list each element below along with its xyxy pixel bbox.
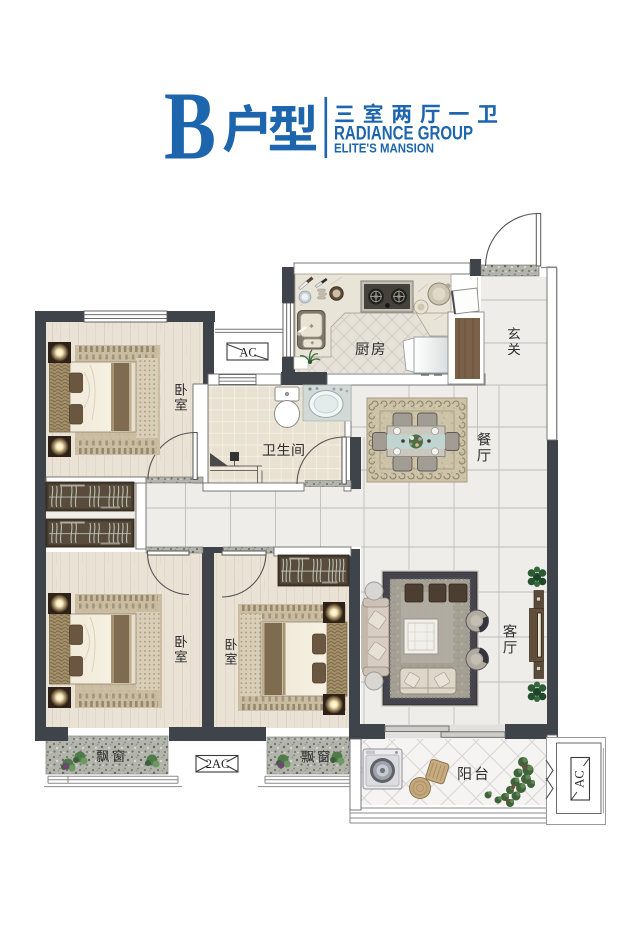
svg-text:2AC: 2AC (206, 757, 230, 771)
svg-text:AC: AC (573, 770, 587, 787)
svg-text:ELITE'S MANSION: ELITE'S MANSION (334, 141, 434, 156)
svg-text:AC: AC (239, 346, 256, 360)
svg-text:B: B (164, 73, 216, 181)
